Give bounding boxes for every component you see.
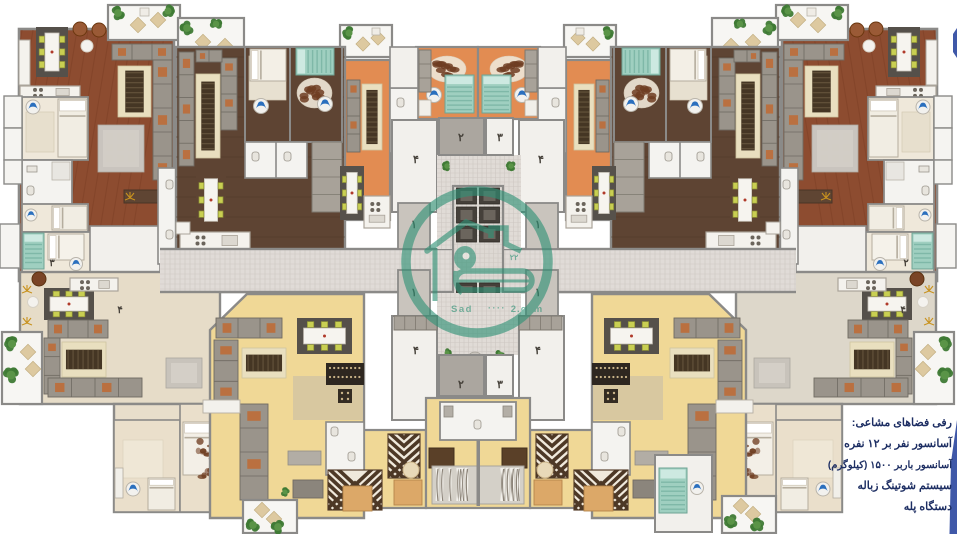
svg-text:۲: ۲ bbox=[458, 379, 464, 391]
svg-text:۲: ۲ bbox=[903, 258, 909, 269]
svg-text:۴: ۴ bbox=[535, 345, 541, 357]
svg-text:۴: ۴ bbox=[538, 154, 544, 166]
svg-text:۴: ۴ bbox=[413, 154, 419, 166]
svg-text:۳: ۳ bbox=[497, 132, 503, 144]
svg-text:۴: ۴ bbox=[900, 305, 905, 316]
svg-text:2.com: 2.com bbox=[511, 304, 543, 315]
svg-text:۳: ۳ bbox=[497, 379, 503, 391]
svg-text:۴: ۴ bbox=[413, 345, 419, 357]
svg-text:۲: ۲ bbox=[458, 132, 464, 144]
svg-text:۴: ۴ bbox=[117, 305, 122, 316]
svg-text:Sad: Sad bbox=[451, 304, 473, 315]
svg-text:۲۲: ۲۲ bbox=[510, 253, 519, 262]
svg-text:····: ···· bbox=[488, 303, 506, 313]
svg-text:۳: ۳ bbox=[49, 258, 55, 269]
